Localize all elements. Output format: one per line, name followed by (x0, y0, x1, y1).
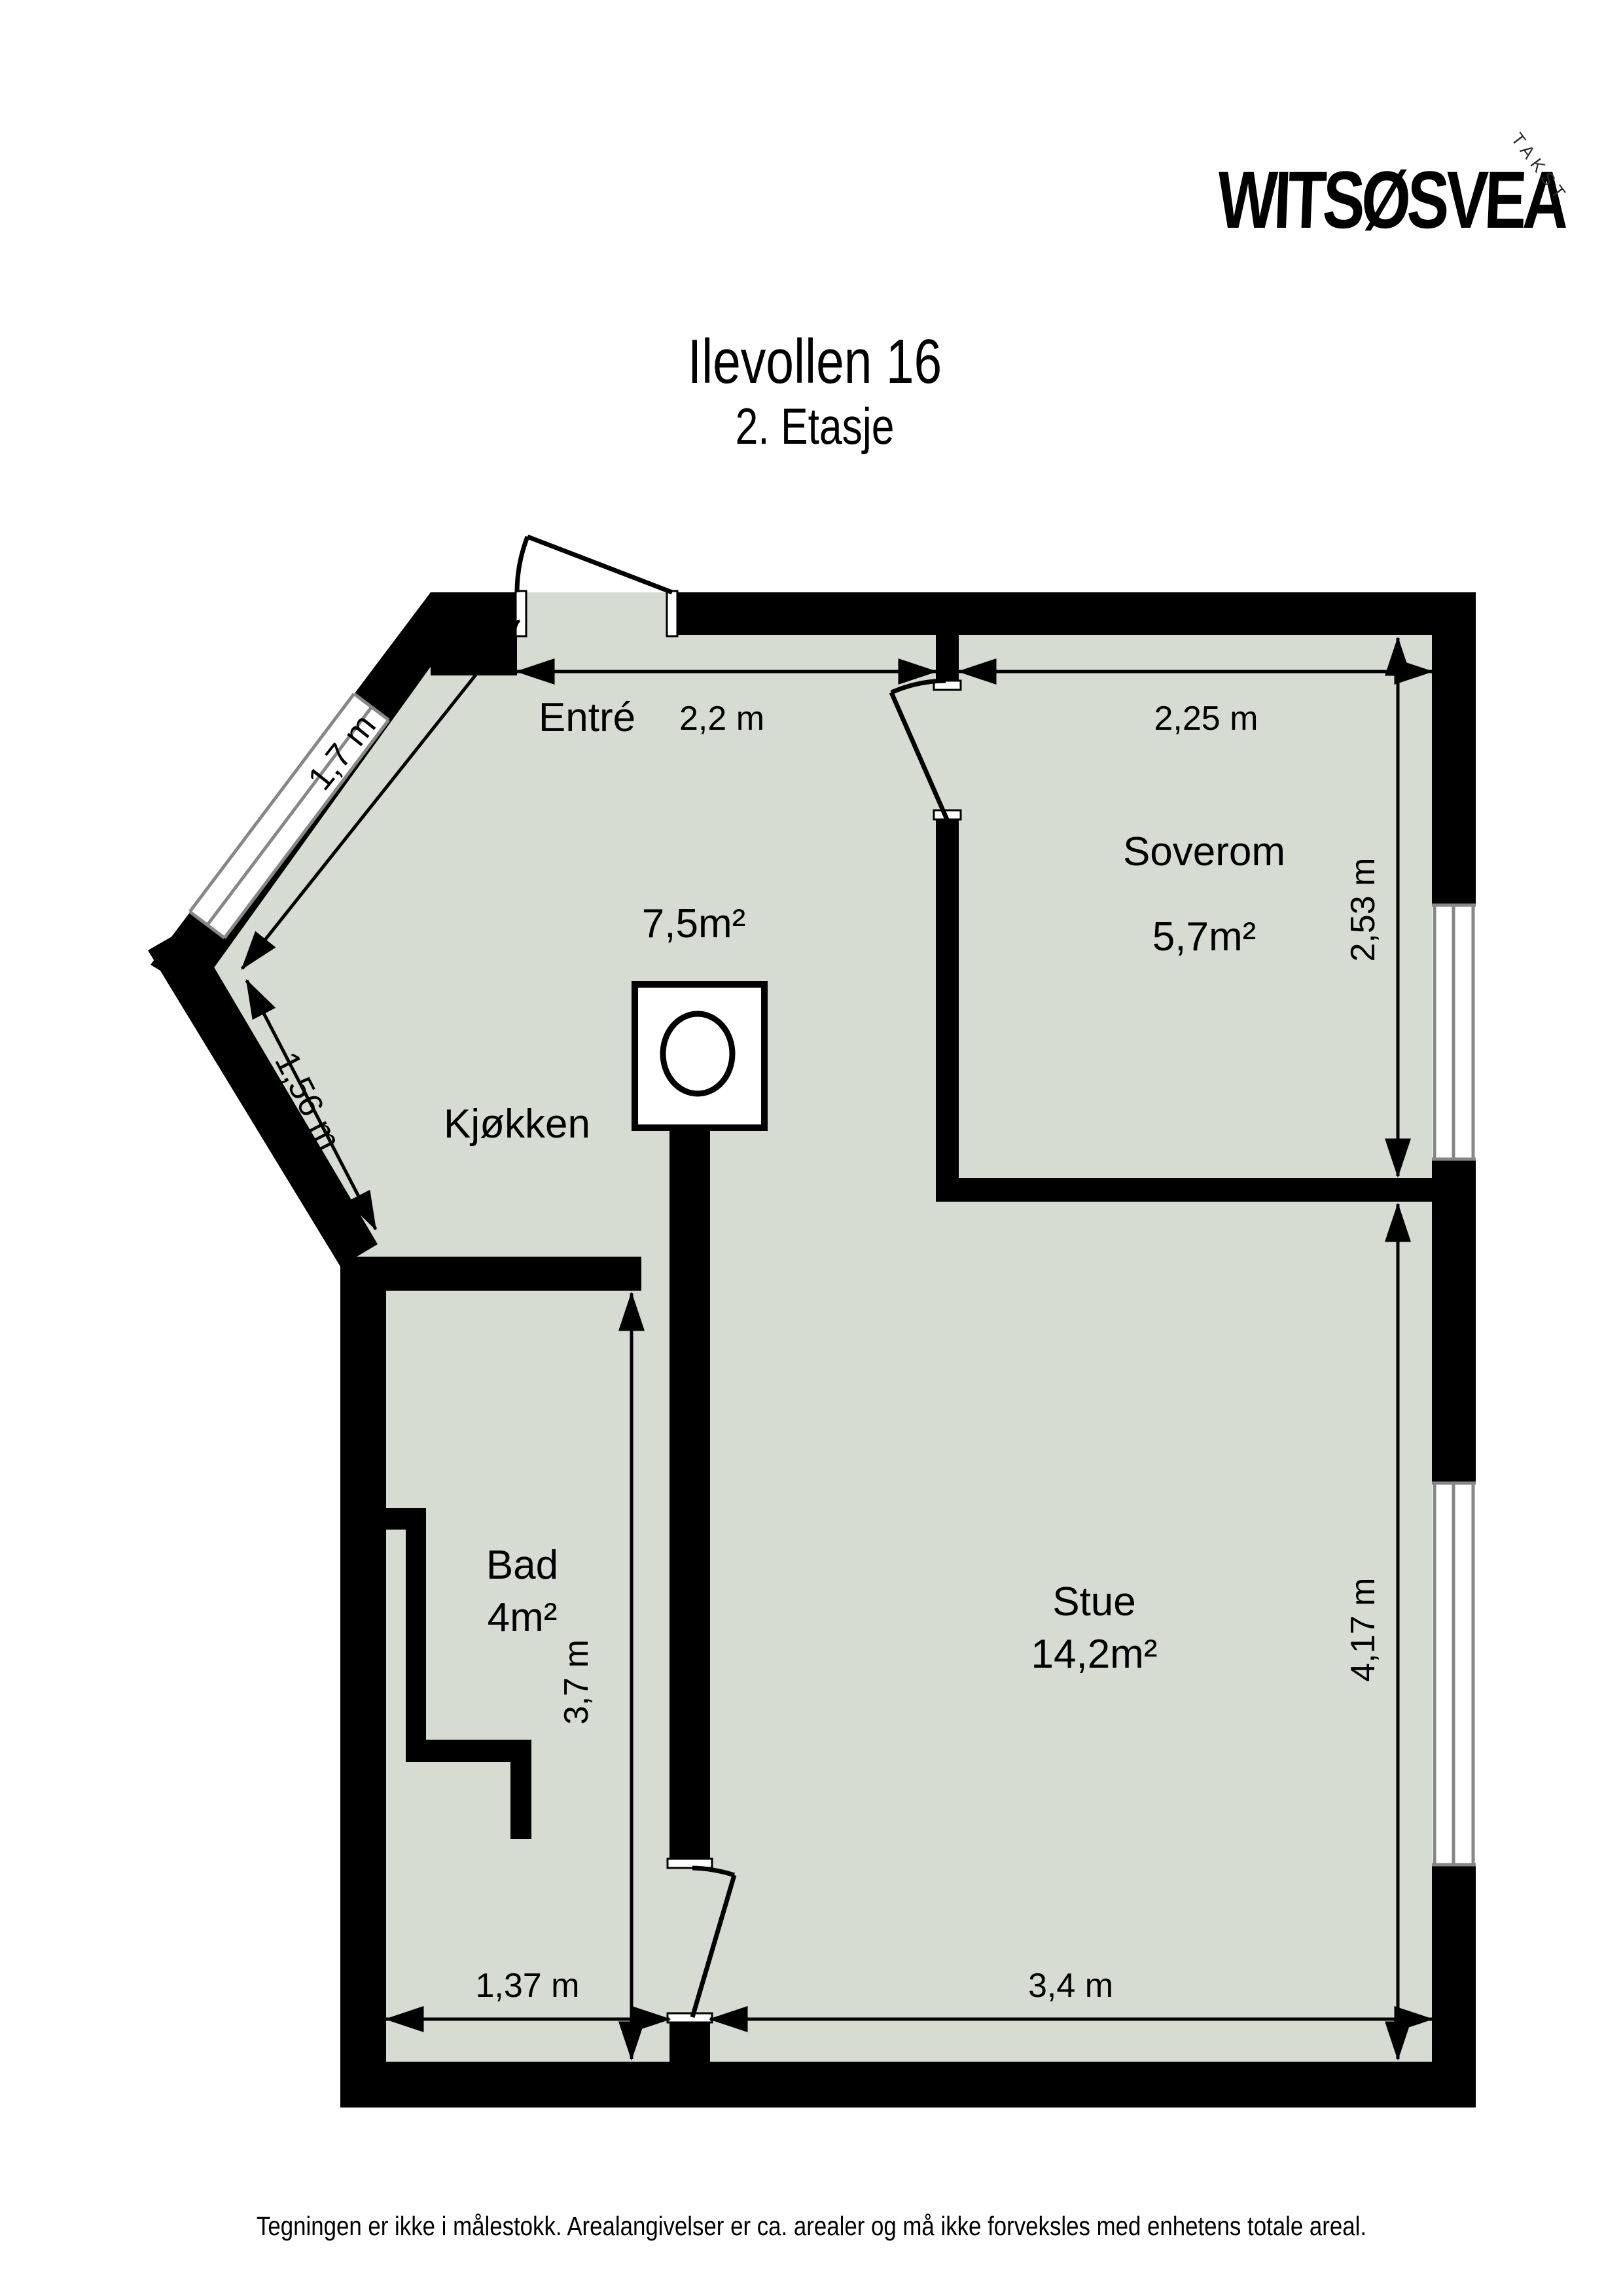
bad-step-bar2 (406, 1530, 426, 1740)
dimension-label-soverom-width: 2,25 m (1154, 700, 1258, 738)
wall-left-bad (340, 1257, 386, 2108)
wall-entre-soverom-stub (936, 635, 959, 681)
wall-entre-soverom (936, 819, 959, 1202)
door-entrance-arc (517, 537, 527, 592)
area-label-bad: 4m² (488, 1595, 558, 1640)
bad-step-bar3 (406, 1740, 531, 1762)
dimension-label-bad-height: 3,7 m (558, 1640, 596, 1725)
room-label-stue: Stue (1052, 1579, 1136, 1624)
wall-soverom-stue (936, 1178, 1432, 1202)
room-label-entre: Entré (539, 695, 635, 740)
door-entrance-leaf (527, 537, 672, 592)
bad-step-bar4 (510, 1762, 531, 1839)
logo: WITSØSVEA TAKST (1216, 130, 1573, 245)
wall-top (677, 592, 1476, 635)
dimension-label-bad-width: 1,37 m (476, 1967, 580, 2005)
dimension-label-stue-width: 3,4 m (1028, 1967, 1113, 2005)
area-label-kjokken: 7,5m² (642, 901, 745, 946)
door-entrance-jamb-right (667, 591, 677, 636)
wall-kitchen-stub (669, 2022, 710, 2062)
floorplan-page: WITSØSVEA TAKST Ilevollen 16 2. Etasje (0, 0, 1623, 2296)
dimension-label-stue-height: 4,17 m (1344, 1578, 1382, 1682)
plan-header: Ilevollen 16 2. Etasje (688, 327, 942, 455)
door-stue-jamb-bottom (668, 2013, 712, 2022)
wall-bottom (340, 2062, 1476, 2108)
kitchen-fixture (635, 984, 764, 1128)
wall-right (1432, 592, 1476, 2108)
window-stue (1432, 1482, 1476, 1866)
room-label-bad: Bad (486, 1543, 558, 1588)
wall-kjokken-bad (386, 1257, 641, 1291)
area-label-soverom: 5,7m² (1152, 914, 1256, 960)
room-label-kjokken: Kjøkken (444, 1102, 590, 1147)
dimension-label-entre-width: 2,2 m (679, 700, 764, 738)
page-title: Ilevollen 16 (688, 327, 942, 397)
door-entrance-jamb-left (516, 591, 526, 636)
dimension-label-soverom-height: 2,53 m (1344, 858, 1382, 962)
page-subtitle: 2. Etasje (736, 397, 895, 454)
disclaimer-text: Tegningen er ikke i målestokk. Arealangi… (257, 2212, 1366, 2241)
logo-brand-text: WITSØSVEA (1216, 154, 1569, 245)
kitchen-fixture-basin (663, 1014, 732, 1094)
wall-kitchen (669, 1128, 710, 1859)
window-soverom (1432, 904, 1476, 1160)
area-label-stue: 14,2m² (1031, 1632, 1158, 1677)
room-label-soverom: Soverom (1123, 829, 1285, 874)
bad-step-bar1 (386, 1508, 426, 1530)
